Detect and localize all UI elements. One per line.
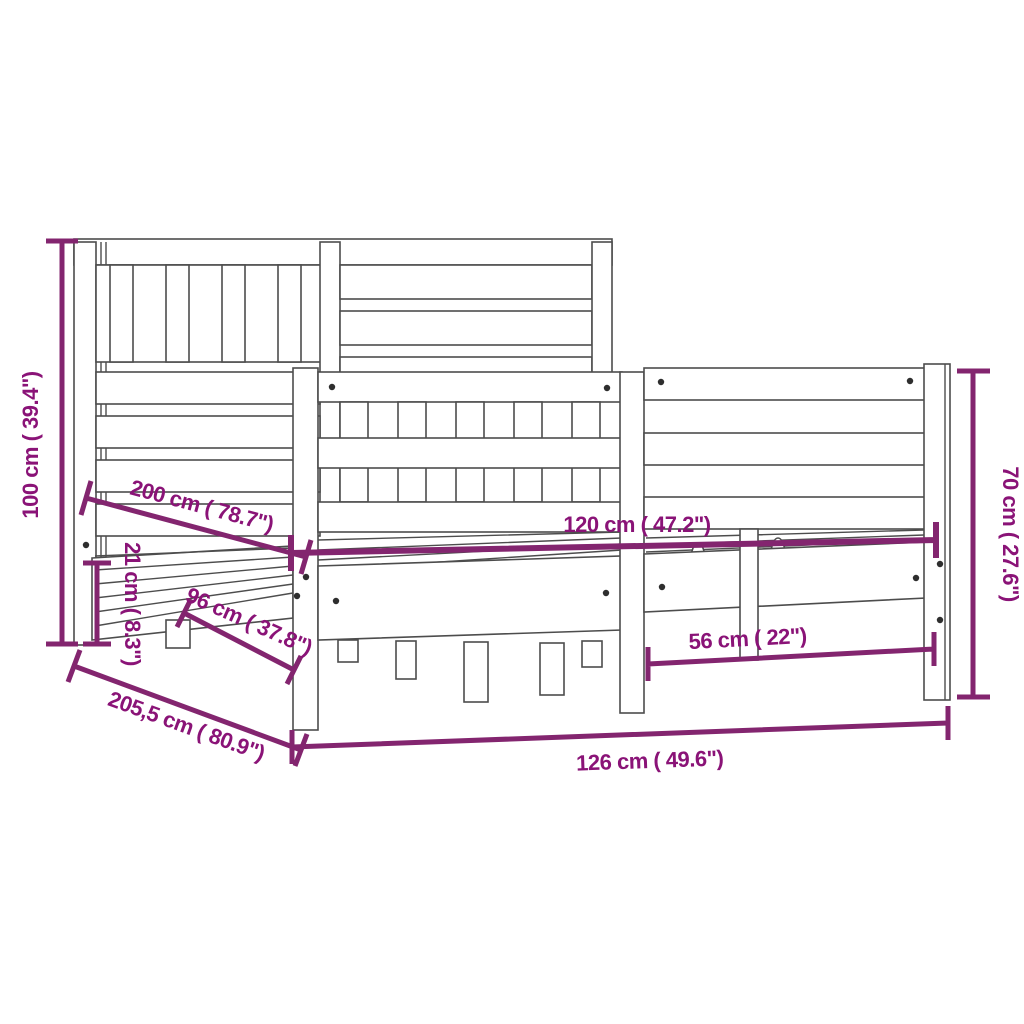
headboard-slat bbox=[110, 265, 133, 362]
headboard-top-rail bbox=[74, 239, 612, 265]
headboard-board bbox=[96, 416, 320, 448]
footboard-board bbox=[644, 368, 926, 400]
headboard-slat bbox=[278, 265, 301, 362]
leg bbox=[396, 641, 416, 679]
dimension-label-120cm: 120 cm ( 47.2") bbox=[563, 512, 710, 537]
middle-cross-board bbox=[318, 438, 622, 468]
dimension-label-21cm: 21 cm ( 8.3") bbox=[120, 542, 145, 666]
side-rail-far bbox=[644, 542, 926, 612]
dimension-label-205cm: 205,5 cm ( 80.9") bbox=[105, 686, 268, 766]
dimension-label-100cm: 100 cm ( 39.4") bbox=[18, 371, 43, 518]
dimension-line-70cm bbox=[957, 371, 990, 697]
leg bbox=[338, 640, 358, 662]
headboard-board bbox=[96, 460, 320, 492]
footboard-left-post bbox=[620, 372, 644, 713]
leg bbox=[540, 643, 564, 695]
dimension-label-56cm: 56 cm ( 22") bbox=[688, 623, 807, 654]
side-rail-front bbox=[318, 556, 622, 640]
headboard-board bbox=[340, 265, 592, 299]
dimension-label-126cm: 126 cm ( 49.6") bbox=[576, 745, 724, 775]
front-post bbox=[293, 368, 318, 730]
dimension-label-70cm: 70 cm ( 27.6") bbox=[998, 466, 1023, 602]
dimension-line-205cm bbox=[68, 650, 307, 766]
footboard-board bbox=[644, 433, 926, 465]
headboard-slat bbox=[222, 265, 245, 362]
headboard-board bbox=[96, 372, 320, 404]
leg bbox=[464, 642, 488, 702]
middle-top-rail bbox=[318, 372, 622, 402]
headboard-board bbox=[340, 311, 592, 345]
bed-frame-drawing: 100 cm ( 39.4") 200 cm ( 78.7") 21 cm ( … bbox=[0, 0, 1024, 1024]
product-dimension-diagram: 100 cm ( 39.4") 200 cm ( 78.7") 21 cm ( … bbox=[0, 0, 1024, 1024]
headboard-right-post bbox=[592, 242, 612, 374]
leg bbox=[582, 641, 602, 667]
dimension-line-100cm bbox=[46, 241, 78, 644]
headboard-slat bbox=[166, 265, 189, 362]
